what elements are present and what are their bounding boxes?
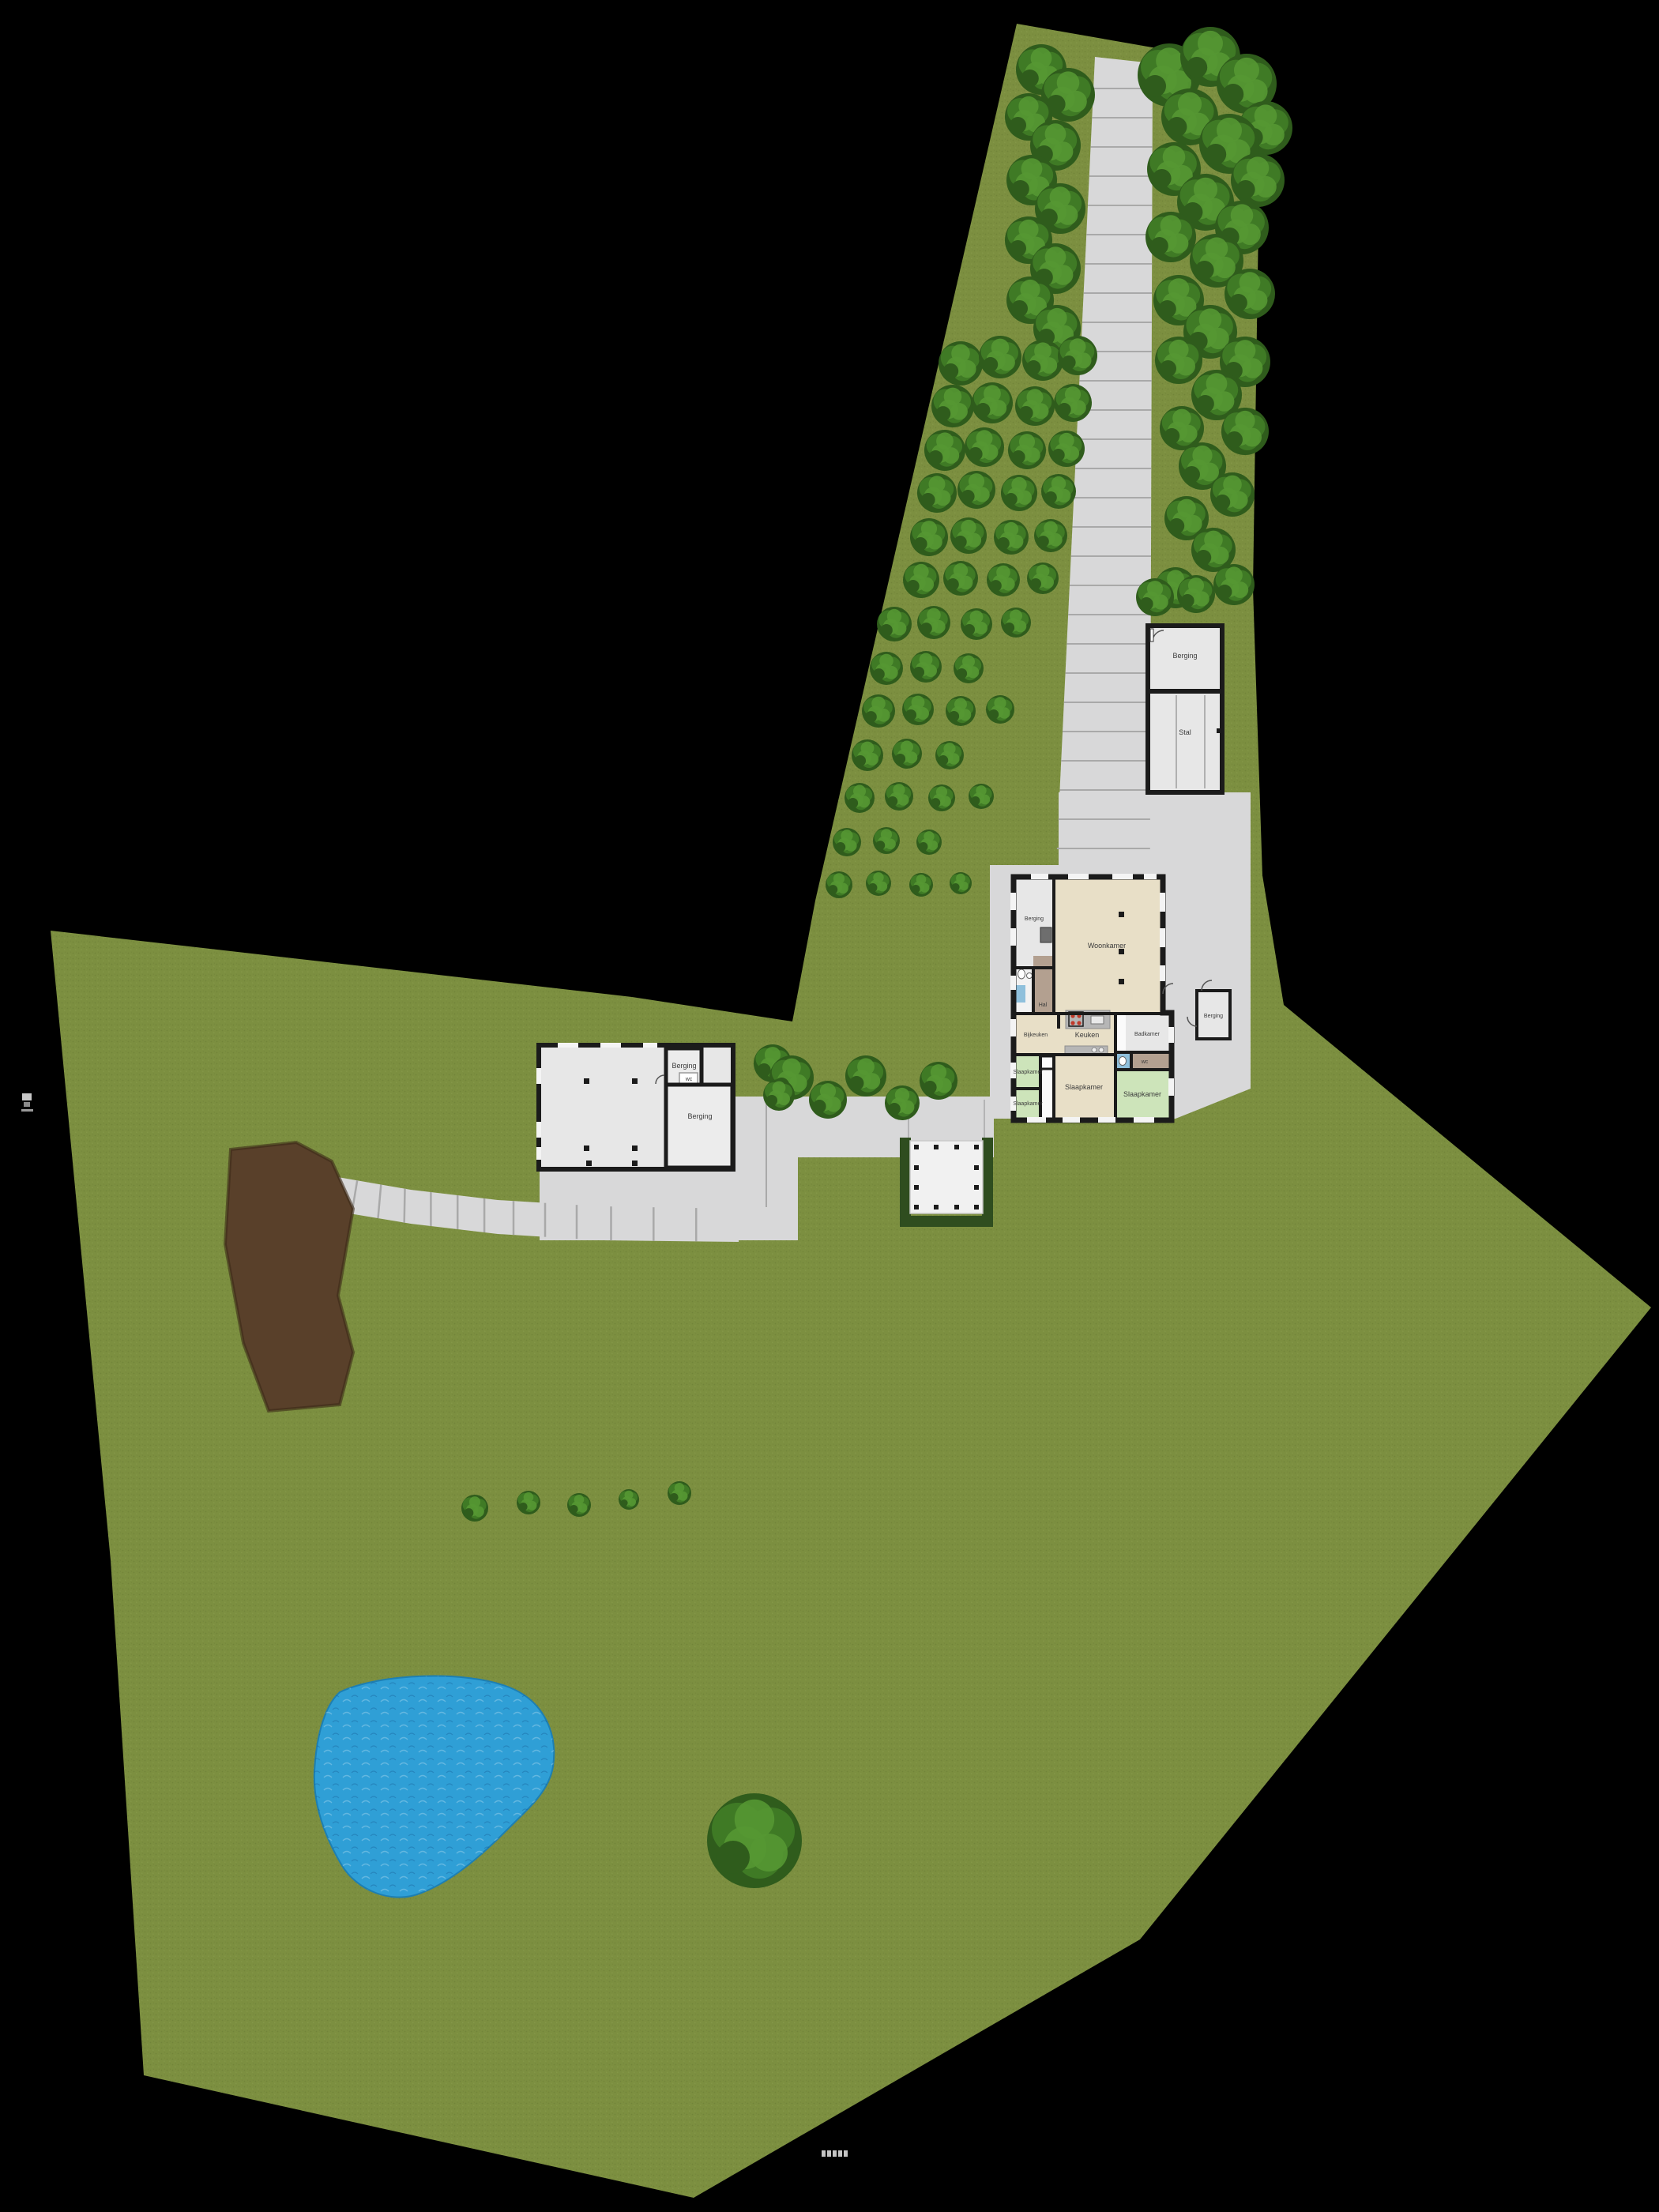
pergola-post [934, 1145, 939, 1149]
pergola-post [914, 1165, 919, 1170]
outbuilding[interactable]: Berging Stal [1148, 626, 1222, 792]
room-label: Keuken [1075, 1031, 1100, 1039]
pergola-post [974, 1185, 979, 1190]
tree [994, 520, 1029, 555]
washbasin-left [1027, 973, 1033, 979]
room-label: Berging [671, 1062, 696, 1070]
watermark [822, 2150, 848, 2157]
room-label: Slaapkamer [1065, 1083, 1103, 1091]
tree [1022, 340, 1063, 381]
post [1217, 728, 1221, 733]
pergola-post [914, 1145, 919, 1149]
tree [1001, 475, 1037, 511]
tree [917, 606, 950, 639]
tree [917, 473, 957, 513]
tree [668, 1481, 691, 1505]
yard-top [1059, 792, 1251, 869]
sink-bowl [1099, 1048, 1104, 1052]
tree [1224, 269, 1275, 319]
tree [833, 828, 861, 856]
room-berging-tl[interactable] [1016, 879, 1053, 966]
tree [931, 385, 974, 427]
room-label: Berging [1172, 652, 1197, 660]
tree [903, 562, 939, 598]
outbuilding-body [1148, 626, 1222, 792]
tree [935, 741, 964, 769]
pergola-post [954, 1145, 959, 1149]
tree [852, 739, 883, 771]
pergola-post [934, 1205, 939, 1209]
tree [946, 696, 976, 726]
room-label: Stal [1179, 728, 1191, 736]
room-label: Slaapkamer [1013, 1101, 1043, 1107]
shed[interactable]: Berging wc Berging [536, 1043, 733, 1169]
tree [950, 872, 972, 894]
tree [1145, 212, 1196, 262]
pergola-deck [910, 1141, 983, 1213]
main-house[interactable]: Woonkamer Berging Hal Bijkeuken Keuken B… [1010, 874, 1174, 1123]
tree [885, 1085, 920, 1120]
shower-left [1016, 985, 1025, 1003]
sink-bowl [1092, 1048, 1097, 1052]
tree [763, 1079, 795, 1111]
tree [1008, 431, 1046, 469]
tree [461, 1495, 488, 1522]
room-label: Hal [1039, 1003, 1048, 1008]
tree [957, 471, 995, 509]
tree [1054, 384, 1092, 422]
tree [910, 651, 942, 683]
tree [920, 1062, 957, 1100]
room-label: Berging [1025, 916, 1044, 922]
toilet-right [1119, 1057, 1127, 1066]
pergola-post [974, 1165, 979, 1170]
tree [924, 430, 965, 471]
tree [1041, 474, 1076, 509]
kitchen-sink [1091, 1016, 1104, 1024]
scene: Berging Stal Berging wc Berging [0, 0, 1659, 2212]
tree [928, 784, 955, 811]
tree [809, 1081, 847, 1119]
tree [1221, 408, 1269, 455]
tree [877, 607, 912, 641]
tree [1027, 562, 1059, 594]
tree [862, 694, 895, 728]
pergola-post [914, 1205, 919, 1209]
tree [909, 873, 933, 897]
tree [873, 827, 900, 854]
tree [987, 563, 1020, 596]
road-seam [404, 1189, 405, 1223]
tree [961, 608, 992, 640]
tree [885, 782, 913, 811]
room-label: Slaapkamer [1123, 1090, 1161, 1098]
tree [892, 739, 922, 769]
tree [1015, 386, 1055, 426]
tree [979, 336, 1021, 378]
room-label: Berging [1204, 1014, 1223, 1019]
tree [910, 518, 948, 556]
tree [1231, 153, 1285, 207]
tree [517, 1491, 540, 1514]
pergola-post [974, 1205, 979, 1209]
pergola-post [974, 1145, 979, 1149]
room-label: Badkamer [1134, 1032, 1161, 1037]
room-label: Woonkamer [1088, 942, 1126, 950]
tree [1034, 519, 1067, 552]
tree [707, 1793, 802, 1888]
tree [1177, 575, 1215, 613]
tree [567, 1493, 591, 1517]
tree [845, 783, 875, 813]
pergola-post [914, 1185, 919, 1190]
door-leaf [1150, 629, 1153, 641]
tree [826, 871, 852, 898]
pergola[interactable] [905, 1138, 987, 1221]
tree [619, 1489, 639, 1510]
room-label: Bijkeuken [1024, 1033, 1048, 1038]
tree [939, 341, 983, 386]
tree [972, 382, 1013, 423]
pergola-post [954, 1205, 959, 1209]
tree [866, 871, 891, 896]
tree [845, 1055, 886, 1097]
tree [954, 653, 984, 683]
tree [965, 427, 1004, 467]
tree [1210, 472, 1255, 517]
tree [1001, 608, 1031, 638]
tree [916, 829, 942, 855]
tree [1155, 337, 1202, 384]
room-label: Slaapkamer [1013, 1070, 1043, 1075]
room-label: wc [1141, 1059, 1149, 1065]
room-wc-brown[interactable] [1131, 1054, 1169, 1069]
fireplace [1040, 927, 1051, 942]
tree [870, 652, 903, 685]
toilet-left [1018, 969, 1025, 979]
tree [943, 561, 978, 596]
tree [969, 784, 994, 809]
tree [1048, 431, 1085, 467]
shed-room-main[interactable] [666, 1085, 732, 1168]
tree [1058, 336, 1097, 375]
room-label: Berging [687, 1112, 712, 1120]
tree [902, 694, 934, 725]
tree [1213, 564, 1255, 605]
room-label: wc [685, 1077, 693, 1082]
tree [950, 517, 987, 554]
tree [986, 695, 1014, 724]
tree [1136, 578, 1174, 616]
